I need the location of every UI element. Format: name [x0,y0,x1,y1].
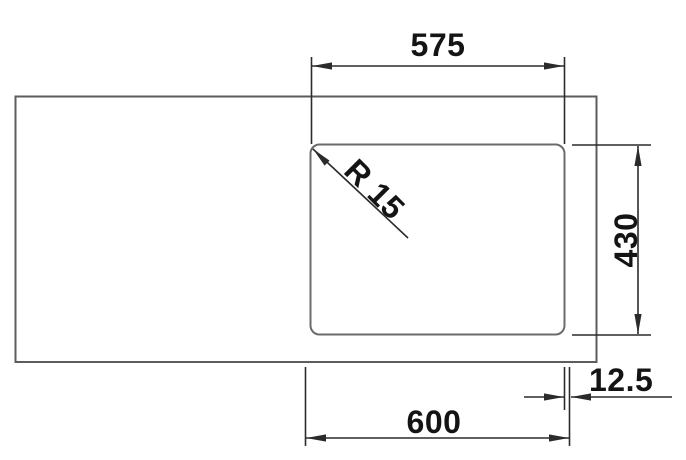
arrow-up-icon [634,146,641,166]
arrow-left-icon [571,393,591,400]
arrow-right-icon [549,434,569,441]
arrowheads [544,393,591,400]
dimension-label-600: 600 [407,404,462,440]
dimension-label-12-5: 12.5 [589,362,653,398]
sink-outline-rect [16,97,597,363]
sink-technical-drawing: 575 430 600 [0,0,686,460]
arrow-left-icon [306,434,326,441]
dimension-label-575: 575 [411,27,466,63]
arrow-down-icon [634,314,641,334]
dimension-575-top [312,57,565,144]
dimension-label-r15: R 15 [337,152,412,227]
dimension-label-430: 430 [608,213,644,268]
arrow-right-icon [544,393,564,400]
arrow-left-icon [312,62,332,69]
drawing-canvas: 575 430 600 [0,0,686,460]
arrow-right-icon [544,62,564,69]
